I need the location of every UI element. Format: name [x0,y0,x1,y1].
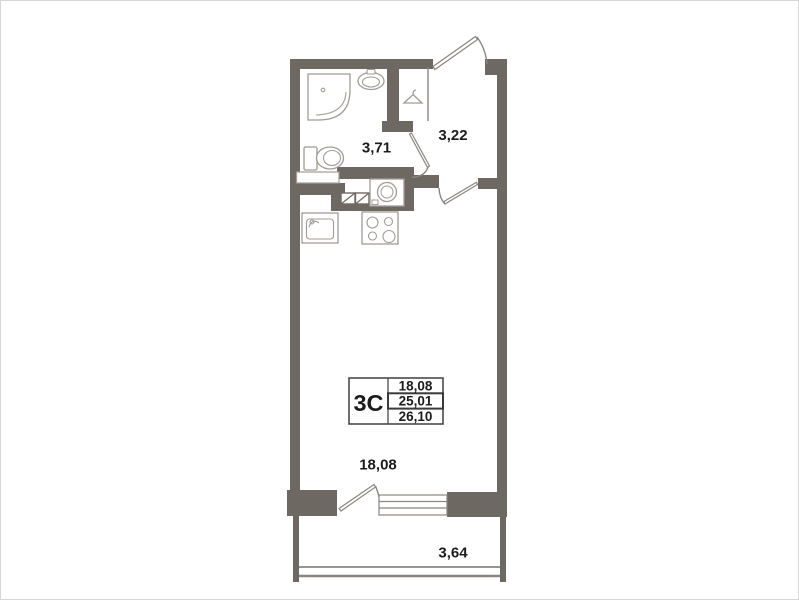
room-area-label: 18,08 [359,457,397,474]
bathroom-cabinet [297,172,340,183]
wall-bottom-left-block [287,490,337,516]
wall-left [290,59,300,493]
closet [404,67,428,121]
doors [339,37,487,512]
wall-closet-bottom [382,121,413,132]
balcony-door-leaf [339,485,376,512]
bathroom-area-label: 3,71 [362,140,391,157]
area-table-value-2: 25,01 [399,394,433,409]
entrance-door-leaf [433,37,478,70]
unit-type-label: 3С [353,390,383,416]
bathroom-sink-faucet [367,70,375,75]
area-table: 3С 18,08 25,01 26,10 [349,378,443,424]
balcony-area-label: 3,64 [438,545,468,562]
area-table-value-3: 26,10 [399,409,433,424]
area-table-value-1: 18,08 [399,379,433,394]
wall-hall-jamb-right [478,178,497,189]
hanger-icon [404,90,422,103]
bathroom-door-leaf [410,133,430,168]
window [379,495,447,515]
bathroom-fixtures [297,70,385,184]
washing-machine-icon [370,179,404,206]
floorplan-image: 3,71 3,22 18,08 3,64 3С 18,08 25,01 26,1… [0,0,799,600]
stove-icon [362,212,398,244]
toilet-tank [304,147,317,170]
window-frame [379,495,447,515]
hallway-area-label: 3,22 [438,127,467,144]
kitchen-fixtures [302,212,398,244]
balcony-railing [299,567,500,576]
wall-balcony-left [293,516,299,582]
wall-above-washer [337,167,414,179]
hall-room-door-leaf [444,182,478,204]
wall-bottom-right-block [447,492,507,517]
wall-balcony-right [500,516,506,582]
vent-shafts [341,193,369,204]
wall-top [290,59,433,69]
floorplan-drawing: 3,71 3,22 18,08 3,64 3С 18,08 25,01 26,1… [1,1,798,599]
wall-right [497,61,507,517]
